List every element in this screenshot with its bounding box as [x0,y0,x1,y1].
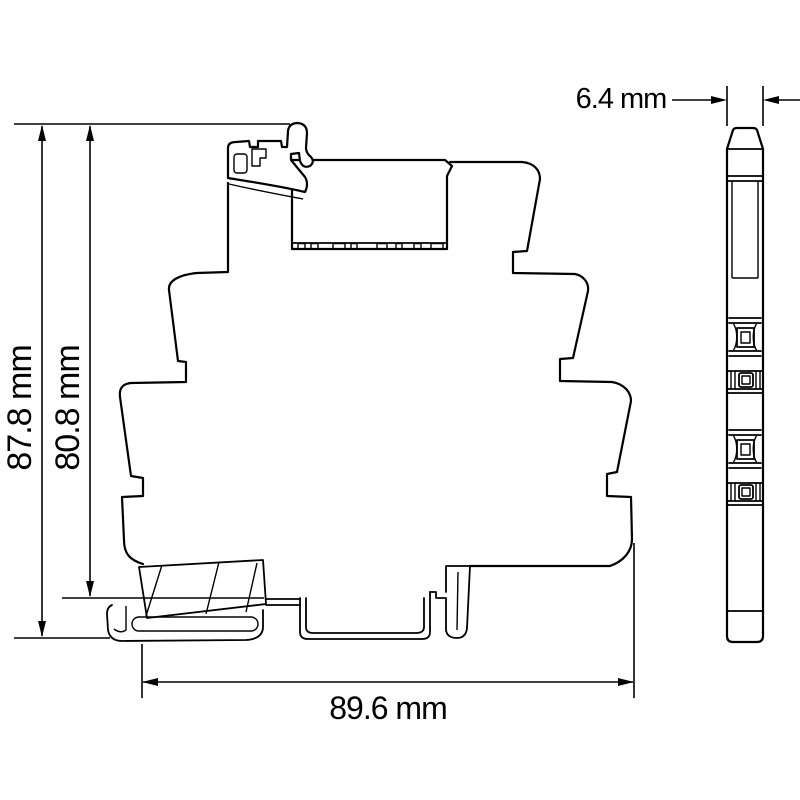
dimension-body-height: 80.8 mm [49,125,264,598]
din-rail-channel [266,592,430,639]
din-clip [228,123,313,199]
dimension-overall-width: 89.6 mm [142,543,634,726]
din-foot-hook [430,566,470,638]
dim-label-body-height: 80.8 mm [49,345,87,470]
housing-left-profile [120,183,228,564]
technical-drawing-page: 87.8 mm 80.8 mm 89.6 mm 6.4 m [0,0,800,800]
edge-terminal-1 [729,318,761,356]
din-foot-latch [107,560,266,641]
edge-view-drawing [727,128,763,642]
dimension-depth: 6.4 mm [576,83,800,126]
dim-label-overall-width: 89.6 mm [329,690,446,726]
side-view-drawing [107,123,632,641]
edge-band-2 [727,483,763,505]
edge-foot [727,611,763,642]
dim-label-overall-height: 87.8 mm [1,345,39,470]
din-clip-body [228,123,313,192]
relay-block [292,160,452,249]
edge-cap [727,128,763,149]
housing-right-profile [450,162,632,566]
edge-band-1 [727,371,763,393]
dimension-drawing: 87.8 mm 80.8 mm 89.6 mm 6.4 m [0,0,800,800]
dim-label-depth: 6.4 mm [576,83,667,115]
edge-terminal-2 [729,430,761,468]
